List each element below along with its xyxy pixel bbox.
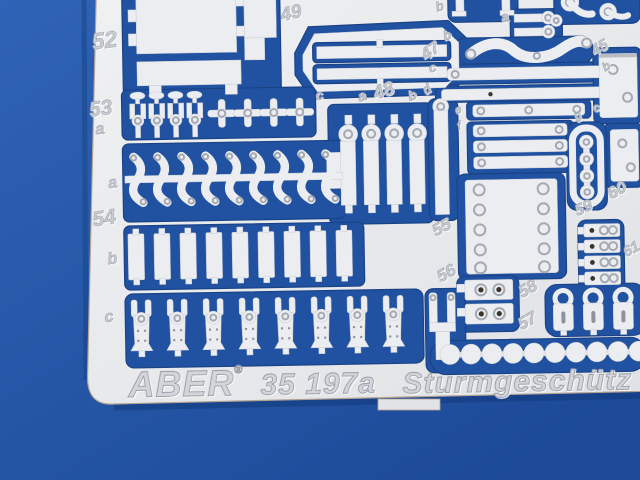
slat bbox=[310, 226, 327, 282]
part-54a bbox=[124, 152, 343, 205]
label-54: 54 bbox=[91, 205, 118, 231]
part-56 bbox=[465, 179, 559, 275]
strip-part bbox=[407, 114, 428, 212]
bead bbox=[587, 342, 607, 362]
hole-strip bbox=[578, 255, 620, 269]
hole-strip bbox=[578, 239, 620, 253]
fret-content: 52 53 a 49 b a b 47 c 45 b c a 48 b d e … bbox=[85, 0, 640, 406]
fret-photo-canvas: 52 53 a 49 b a b 47 c 45 b c a 48 b d e … bbox=[0, 0, 640, 480]
hole-plate bbox=[457, 303, 513, 324]
strip-part bbox=[361, 115, 382, 213]
bead bbox=[608, 341, 628, 361]
photo-of-photoetch-fret: 52 53 a 49 b a b 47 c 45 b c a 48 b d e … bbox=[0, 0, 640, 480]
slat bbox=[206, 227, 223, 283]
bead bbox=[461, 344, 481, 364]
registered-mark: ® bbox=[234, 364, 243, 376]
part-48 bbox=[326, 114, 428, 214]
hole-plate bbox=[457, 279, 513, 300]
label-53: 53 bbox=[88, 96, 114, 122]
slat bbox=[128, 229, 145, 285]
fret-left-shadow bbox=[84, 0, 86, 380]
label-52: 52 bbox=[90, 26, 119, 55]
bead bbox=[545, 342, 565, 362]
slat bbox=[336, 225, 353, 281]
strip-part bbox=[384, 114, 405, 212]
bead bbox=[566, 342, 586, 362]
strip-part bbox=[338, 115, 359, 213]
part-55 bbox=[433, 98, 451, 214]
slat bbox=[258, 227, 275, 283]
slat bbox=[180, 228, 197, 284]
hole-strip bbox=[578, 223, 620, 237]
fret-bottom-tab bbox=[378, 399, 440, 410]
bead bbox=[482, 344, 502, 364]
bead bbox=[503, 343, 523, 363]
set-name-text: Sturmgeschütz bbox=[402, 363, 632, 400]
slat bbox=[154, 228, 171, 284]
bead bbox=[440, 344, 460, 364]
brand-text: ABER bbox=[127, 362, 235, 405]
set-number-text: 35 197a bbox=[260, 367, 376, 402]
slat bbox=[232, 227, 249, 283]
slat bbox=[284, 226, 301, 282]
hole-strip bbox=[579, 271, 621, 285]
part-54b bbox=[128, 225, 353, 285]
bead bbox=[524, 343, 544, 363]
